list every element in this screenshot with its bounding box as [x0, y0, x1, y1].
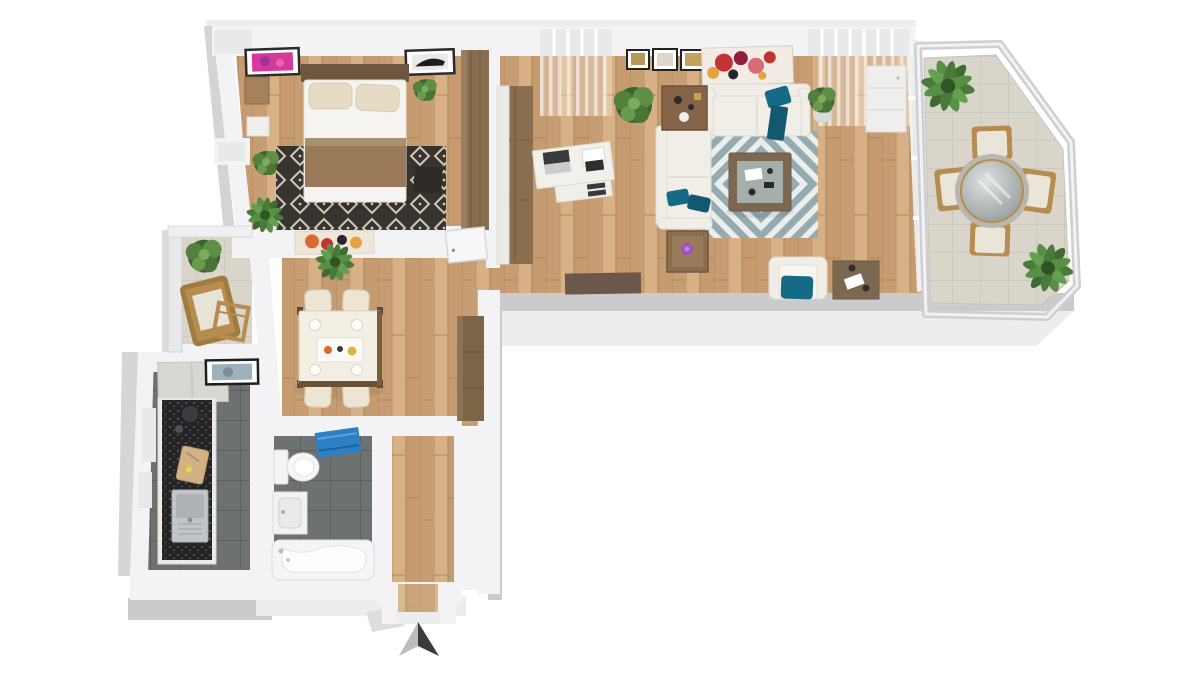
sheer-curtain — [540, 56, 612, 116]
wall-hallway-east — [454, 428, 500, 590]
remote — [764, 182, 774, 188]
plate — [310, 365, 321, 376]
toilet — [274, 450, 319, 484]
slab-band-south-kitchen — [128, 598, 272, 620]
kitchen-sink — [172, 490, 208, 542]
blanket-fold — [305, 138, 406, 146]
teal-cushion — [781, 275, 814, 299]
kitchen-west-window2-icon — [138, 472, 152, 508]
flower-side-table — [667, 231, 708, 272]
nightstand — [245, 77, 269, 104]
floorplan-canvas — [0, 0, 1200, 675]
glass-railing-west — [168, 228, 182, 352]
bathtub — [272, 540, 374, 580]
coffee-table — [726, 153, 794, 218]
washbasin-vanity — [273, 492, 307, 534]
tall-cabinet-west — [497, 86, 533, 264]
corner-sofa — [656, 126, 712, 229]
magazine — [744, 168, 762, 181]
door-mat — [565, 272, 641, 294]
dining-chair — [342, 289, 369, 313]
white-cabinet-northeast — [866, 66, 906, 132]
small-white-cabinet — [247, 117, 269, 136]
balcony-east — [918, 44, 1077, 317]
wall-sofa — [704, 84, 810, 141]
headboard — [301, 64, 409, 82]
open-door-leaf — [445, 227, 487, 263]
wardrobe — [461, 50, 489, 230]
living-abstract-painting — [702, 46, 794, 85]
armchair — [769, 257, 827, 300]
round-glass-table — [955, 154, 1029, 228]
bedroom-bench — [413, 166, 443, 194]
railing-top — [168, 226, 252, 237]
square-side-table — [833, 261, 879, 299]
bedroom-dark-wall-art — [406, 49, 455, 75]
plate — [352, 365, 363, 376]
wall-bathroom-east — [372, 428, 392, 586]
wall-kitchen-south — [130, 570, 268, 600]
pillow — [309, 83, 352, 109]
entry-threshold — [398, 584, 438, 612]
wall-panel-cooktop — [206, 360, 258, 385]
living-window-west-icon — [540, 29, 612, 56]
plate — [310, 320, 321, 331]
bedroom-pink-wall-art — [246, 48, 300, 76]
north-arrow-icon — [399, 622, 439, 656]
bedroom-west-window-icon — [218, 142, 245, 161]
tub-faucet — [279, 549, 284, 554]
three-small-frames — [627, 49, 707, 70]
double-bed — [300, 64, 412, 210]
hallway-floor — [392, 428, 454, 584]
floorplan-3d-render — [0, 0, 1200, 675]
faucet — [281, 510, 285, 514]
sideboard — [457, 316, 484, 421]
dining-chair — [304, 289, 331, 313]
plate — [352, 320, 363, 331]
pillow — [355, 84, 399, 112]
side-table-decor — [662, 86, 707, 130]
faucet — [188, 518, 193, 523]
drain — [286, 558, 290, 562]
kitchen-west-window-icon — [142, 408, 156, 462]
wall-kitchen-east — [250, 362, 272, 600]
